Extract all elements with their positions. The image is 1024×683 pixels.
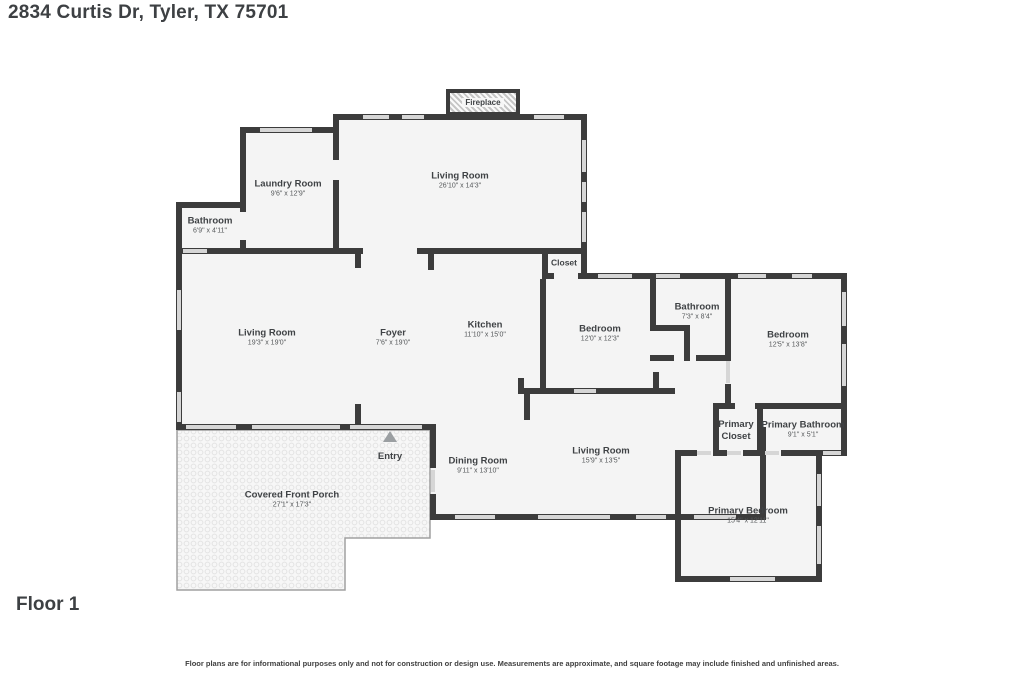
wall <box>333 180 339 254</box>
page-title: 2834 Curtis Dr, Tyler, TX 75701 <box>8 2 288 24</box>
fireplace-label: Fireplace <box>462 98 503 107</box>
window <box>177 392 181 422</box>
room-area <box>363 248 546 394</box>
room-label-bathroom-middle: Bathroom 7'3" x 8'4" <box>675 302 720 323</box>
room-label-living-room-top: Living Room 26'10" x 14'3" <box>431 171 489 192</box>
fireplace: Fireplace <box>446 89 520 116</box>
window <box>363 115 389 119</box>
window <box>177 290 181 330</box>
room-label-kitchen: Kitchen 11'10" x 15'0" <box>464 320 506 341</box>
window <box>842 292 846 326</box>
wall <box>176 202 246 208</box>
window <box>186 425 236 429</box>
wall <box>428 254 434 270</box>
disclaimer-text: Floor plans are for informational purpos… <box>0 659 1024 668</box>
window <box>792 274 812 278</box>
wall <box>653 372 659 388</box>
wall <box>430 424 436 468</box>
window <box>534 115 564 119</box>
wall <box>650 355 674 361</box>
room-label-living-room-bottom: Living Room 15'9" x 13'5" <box>572 446 630 467</box>
floor-label: Floor 1 <box>16 594 79 616</box>
wall <box>684 325 690 361</box>
window <box>656 274 680 278</box>
room-label-bedroom-right: Bedroom 12'5" x 13'8" <box>767 330 809 351</box>
wall <box>524 394 530 420</box>
window <box>582 140 586 172</box>
wall <box>355 254 361 268</box>
room-label-covered-front-porch: Covered Front Porch 27'1" x 17'3" <box>245 490 340 511</box>
window <box>350 425 422 429</box>
window <box>730 577 775 581</box>
door-marker <box>431 470 435 492</box>
door-marker <box>727 451 741 455</box>
window <box>538 515 610 519</box>
room-label-bathroom-topleft: Bathroom 6'9" x 4'11" <box>188 216 233 237</box>
room-label-closet: Closet <box>551 258 577 269</box>
wall <box>240 127 246 212</box>
window <box>402 115 424 119</box>
room-label-primary-bathroom: Primary Bathroom 9'1" x 5'1" <box>762 420 845 441</box>
window <box>636 515 666 519</box>
wall <box>518 388 675 394</box>
room-label-bedroom-middle: Bedroom 12'0" x 12'3" <box>579 324 621 345</box>
wall <box>725 279 731 361</box>
window <box>455 515 495 519</box>
door-marker <box>765 451 779 455</box>
wall <box>518 378 524 388</box>
entry-label: Entry <box>378 451 402 462</box>
window <box>817 526 821 564</box>
window <box>823 451 841 455</box>
door-marker <box>726 361 730 383</box>
floor-plan-page: 2834 Curtis Dr, Tyler, TX 75701 Fireplac… <box>0 0 1024 683</box>
wall <box>333 114 339 160</box>
window <box>183 249 207 253</box>
room-label-foyer: Foyer 7'6" x 19'0" <box>376 328 411 349</box>
wall <box>713 450 727 456</box>
wall <box>417 248 587 254</box>
wall <box>755 403 847 409</box>
window <box>252 425 340 429</box>
entry-arrow-icon <box>383 431 397 442</box>
room-label-dining-room: Dining Room 9'11" x 13'10" <box>448 456 507 477</box>
window <box>582 182 586 202</box>
window <box>598 274 632 278</box>
room-area <box>436 388 526 430</box>
room-label-laundry-room: Laundry Room 9'6" x 12'9" <box>254 179 321 200</box>
window <box>738 274 766 278</box>
door-marker <box>697 451 711 455</box>
door-marker <box>574 389 596 393</box>
room-label-primary-closet: Primary Closet <box>713 419 759 443</box>
wall <box>650 279 656 331</box>
window <box>842 344 846 386</box>
wall <box>540 279 546 394</box>
window <box>260 128 312 132</box>
room-label-primary-bedroom: Primary Bedroom 15'4" x 12'11" <box>708 506 788 527</box>
room-label-living-room-left: Living Room 19'3" x 19'0" <box>238 328 296 349</box>
window <box>582 212 586 242</box>
window <box>817 474 821 506</box>
